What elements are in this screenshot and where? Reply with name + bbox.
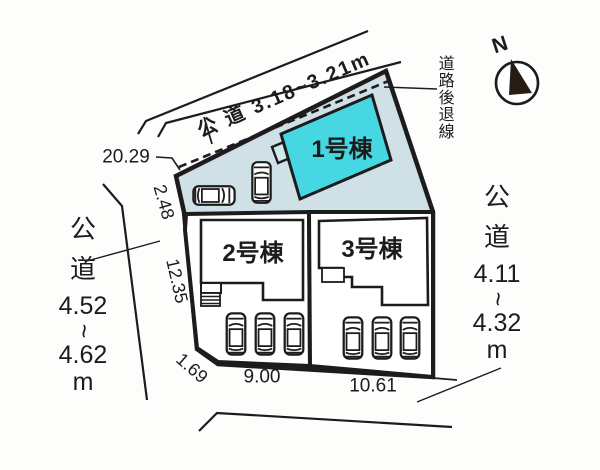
dim-2029-leader-line (156, 157, 180, 170)
left-road-label-line: ~ (73, 324, 93, 339)
site-plan: 公 道 3.18~3.21m 20.29 2.48 12.35 1.69 9.0… (0, 0, 600, 470)
dim-north-frontage: 20.29 (102, 148, 150, 167)
left-road-label-line: 道 (70, 256, 96, 282)
right-road-label-line: ~ (487, 292, 507, 307)
building-3-porch (322, 268, 344, 282)
left-road-label: 公 道 4.52 ~ 4.62 m (47, 216, 119, 395)
dim-lot2-width: 9.00 (244, 368, 281, 387)
car-icon (285, 313, 304, 354)
right-road-label-line: 4.32 (473, 311, 522, 336)
left-road-label-line: 4.62 (59, 343, 108, 368)
right-road-label-line: 4.11 (474, 262, 521, 287)
car-icon (373, 317, 392, 358)
left-road-label-line: 4.52 (59, 294, 108, 319)
dim-lot3-width: 10.61 (349, 377, 397, 396)
car-icon (344, 317, 363, 358)
car-icon (227, 313, 246, 354)
left-road-label-line: m (73, 370, 94, 395)
building-3-label: 3号棟 (341, 238, 402, 262)
building-2-label: 2号棟 (222, 242, 283, 266)
building-2-porch (201, 283, 221, 293)
right-road-label-line: m (487, 338, 508, 363)
right-road-label: 公 道 4.11 ~ 4.32 m (461, 184, 533, 363)
left-road-label-line: 公 (70, 216, 96, 242)
building-1-label: 1号棟 (311, 138, 372, 162)
right-road-label-line: 道 (484, 224, 510, 250)
car-icon (401, 317, 420, 358)
car-icon (193, 186, 234, 205)
bottom-boundary-extension (433, 378, 457, 380)
right-road-label-line: 公 (484, 184, 510, 210)
car-icon (252, 162, 270, 203)
setback-label: 道路後退線 (435, 55, 453, 140)
car-icon (256, 313, 275, 354)
bottom-road-edge (199, 413, 452, 431)
